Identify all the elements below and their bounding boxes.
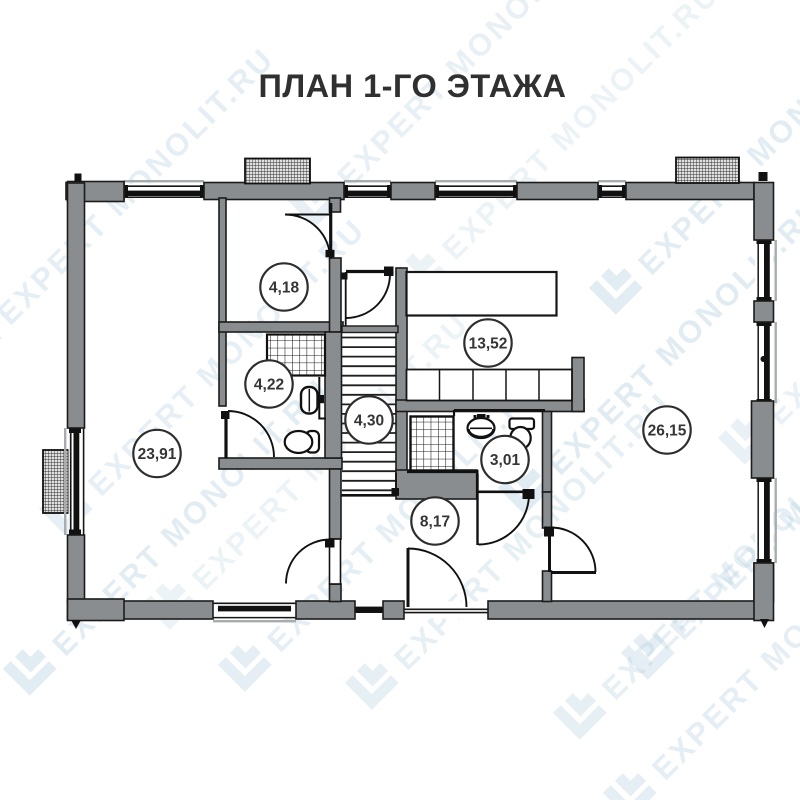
svg-text:26,15: 26,15: [648, 423, 687, 440]
svg-text:4,22: 4,22: [254, 377, 284, 394]
svg-text:8,17: 8,17: [420, 514, 450, 531]
svg-text:23,91: 23,91: [138, 446, 177, 463]
svg-text:3,01: 3,01: [490, 452, 521, 469]
svg-text:13,52: 13,52: [469, 336, 508, 353]
svg-text:4,30: 4,30: [354, 413, 384, 430]
svg-text:4,18: 4,18: [269, 280, 300, 297]
